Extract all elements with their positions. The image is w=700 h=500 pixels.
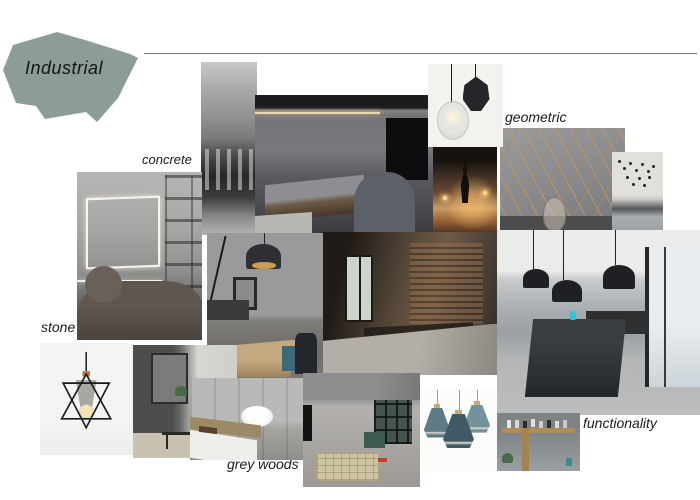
photo-kitchen-loft	[497, 230, 700, 415]
label-functionality: functionality	[583, 415, 657, 431]
facade-windows	[205, 149, 252, 191]
photo-wood-shelf-vases	[497, 413, 580, 471]
lamp-cord	[475, 64, 476, 78]
label-stone: stone	[41, 319, 75, 335]
sideboard	[207, 300, 249, 320]
floor-to-ceiling-window	[645, 247, 700, 388]
photo-cafe-interior	[322, 232, 497, 375]
sofa-cushion	[85, 266, 123, 303]
lamp-cord	[533, 230, 534, 269]
glass-vase	[543, 197, 566, 231]
photo-hanging-bulbs-lounge	[612, 152, 663, 233]
lamp-cord	[437, 390, 438, 404]
candle-glow	[443, 196, 447, 200]
armchair	[354, 172, 415, 237]
checkered-rug	[316, 453, 379, 481]
industrial-pendant-icon	[603, 265, 635, 289]
table-leg	[166, 435, 168, 449]
photo-teal-pendant-lamps	[420, 390, 497, 472]
photo-bedroom-suite	[255, 95, 445, 237]
lamp-cord	[615, 230, 616, 265]
dark-chair	[295, 333, 317, 374]
title-badge: Industrial	[2, 25, 142, 130]
kitchen-island	[525, 319, 627, 397]
blue-chair	[282, 346, 295, 372]
lamp-cord	[451, 64, 452, 103]
photo-concrete-facade	[201, 62, 257, 235]
header-divider-line	[144, 53, 697, 54]
photo-grey-woods-bedroom	[190, 378, 305, 460]
tv-screen	[303, 405, 312, 441]
dome-pendant-icon	[246, 244, 281, 270]
photo-loft-living-room	[303, 373, 420, 487]
concrete-ceiling	[303, 373, 420, 400]
photo-stone-pendant-card	[40, 343, 133, 455]
photo-pendant-lamp-card	[428, 64, 503, 147]
industrial-pendant-icon	[523, 269, 549, 288]
industrial-pendant-icon	[552, 280, 582, 302]
mood-board: Industrial	[0, 0, 700, 500]
lamp-cord	[459, 390, 460, 410]
tv-panel	[386, 118, 428, 180]
board-title: Industrial	[25, 58, 103, 79]
teal-accent-object	[570, 311, 576, 320]
lamp-cord	[477, 390, 478, 401]
led-cove-light	[255, 112, 380, 114]
photo-geometric-wall	[500, 128, 625, 233]
glazed-doors	[345, 255, 374, 322]
label-concrete: concrete	[142, 152, 192, 167]
photo-concrete-living-room	[77, 172, 202, 340]
red-accent	[378, 458, 387, 462]
plant	[502, 453, 513, 463]
led-outline	[86, 196, 160, 270]
candle-glow	[483, 191, 487, 195]
wall-shelves	[165, 175, 203, 289]
wood-shelf-post	[522, 428, 529, 471]
mirror	[151, 353, 188, 404]
green-cabinet	[364, 432, 385, 448]
lamp-cord	[264, 233, 265, 244]
candelabra-silhouette	[457, 159, 472, 203]
plant	[175, 386, 187, 396]
brick-wall	[410, 243, 484, 323]
label-geometric: geometric	[505, 109, 566, 125]
shelf-vases	[507, 420, 511, 428]
wire-frame-pendant-icon	[49, 345, 123, 448]
glass-pendant-icon	[437, 101, 469, 140]
wood-shelf-bar	[502, 428, 575, 433]
lamp-cord	[563, 230, 564, 280]
hanging-bulbs-icon	[618, 160, 621, 163]
teal-vase	[566, 458, 572, 466]
photo-decor-objects	[433, 147, 497, 232]
black-faceted-pendant-icon	[463, 76, 490, 111]
